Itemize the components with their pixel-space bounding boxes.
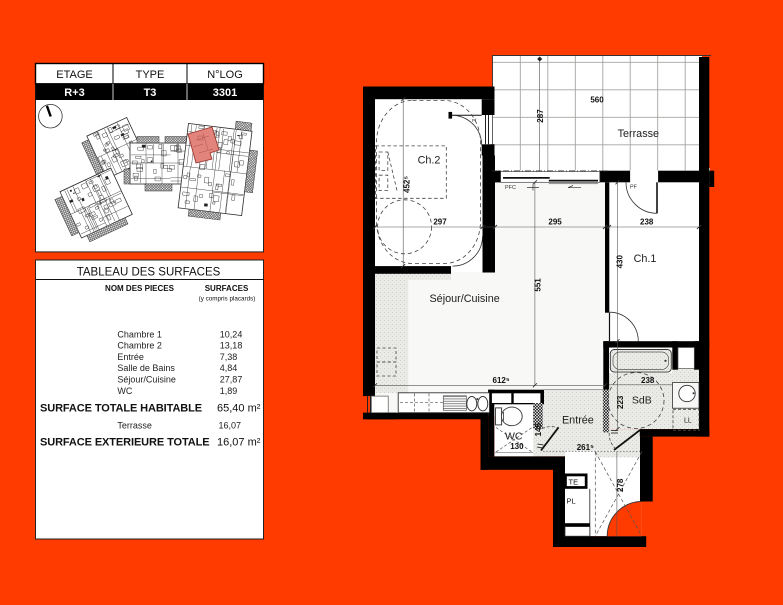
svg-text:261⁵: 261⁵ xyxy=(577,443,594,452)
svg-text:3301: 3301 xyxy=(213,87,237,99)
svg-text:612⁵: 612⁵ xyxy=(493,376,510,385)
svg-text:65,40 m²: 65,40 m² xyxy=(217,403,261,415)
svg-text:SURFACE EXTERIEURE TOTALE: SURFACE EXTERIEURE TOTALE xyxy=(40,436,209,448)
svg-text:238: 238 xyxy=(640,217,654,226)
svg-text:Chambre 2: Chambre 2 xyxy=(117,341,162,351)
svg-text:287: 287 xyxy=(536,109,545,123)
svg-text:Séjour/Cuisine: Séjour/Cuisine xyxy=(117,375,176,385)
svg-text:Entrée: Entrée xyxy=(562,415,594,427)
svg-text:PL: PL xyxy=(567,497,576,506)
svg-text:Ch.1: Ch.1 xyxy=(634,253,657,265)
svg-text:T3: T3 xyxy=(144,87,157,99)
svg-text:SdB: SdB xyxy=(632,395,652,407)
svg-text:223: 223 xyxy=(616,395,625,409)
svg-text:WC: WC xyxy=(117,386,132,396)
svg-text:Séjour/Cuisine: Séjour/Cuisine xyxy=(429,293,499,305)
svg-text:7,38: 7,38 xyxy=(220,352,238,362)
svg-text:295: 295 xyxy=(548,217,562,226)
svg-text:PF: PF xyxy=(630,185,638,191)
svg-text:PFC: PFC xyxy=(505,185,516,191)
svg-text:SURFACES: SURFACES xyxy=(205,284,249,293)
svg-text:TE: TE xyxy=(569,478,579,487)
svg-text:4,84: 4,84 xyxy=(220,363,238,373)
svg-text:10,24: 10,24 xyxy=(220,329,243,339)
svg-text:SURFACE TOTALE HABITABLE: SURFACE TOTALE HABITABLE xyxy=(40,403,202,415)
svg-text:TABLEAU DES SURFACES: TABLEAU DES SURFACES xyxy=(77,267,221,279)
svg-text:NOM DES PIECES: NOM DES PIECES xyxy=(105,284,175,293)
svg-text:238: 238 xyxy=(641,376,655,385)
svg-text:551: 551 xyxy=(534,278,543,292)
svg-text:Ch.2: Ch.2 xyxy=(418,155,441,167)
svg-text:Terrasse: Terrasse xyxy=(117,420,152,430)
svg-text:452⁵: 452⁵ xyxy=(402,176,411,193)
svg-text:1,89: 1,89 xyxy=(220,386,238,396)
svg-text:16,07 m²: 16,07 m² xyxy=(217,436,261,448)
svg-text:TYPE: TYPE xyxy=(136,69,165,81)
svg-text:13,18: 13,18 xyxy=(220,341,243,351)
svg-text:560: 560 xyxy=(590,96,604,105)
svg-text:16,07: 16,07 xyxy=(219,420,242,430)
svg-text:Chambre 1: Chambre 1 xyxy=(117,329,162,339)
svg-text:Entrée: Entrée xyxy=(117,352,144,362)
svg-text:297: 297 xyxy=(433,218,447,227)
svg-text:430: 430 xyxy=(615,254,624,268)
svg-text:145: 145 xyxy=(534,422,543,436)
svg-text:LL: LL xyxy=(684,418,692,425)
svg-text:N°LOG: N°LOG xyxy=(207,69,243,81)
svg-text:ETAGE: ETAGE xyxy=(56,69,92,81)
svg-text:R+3: R+3 xyxy=(64,87,85,99)
svg-text:278: 278 xyxy=(616,478,625,492)
svg-text:Terrasse: Terrasse xyxy=(618,128,659,140)
svg-text:WC: WC xyxy=(505,430,523,442)
svg-text:130: 130 xyxy=(510,442,524,451)
svg-text:27,87: 27,87 xyxy=(220,375,243,385)
svg-text:(y compris placards): (y compris placards) xyxy=(199,296,256,303)
svg-text:Salle de Bains: Salle de Bains xyxy=(117,363,175,373)
